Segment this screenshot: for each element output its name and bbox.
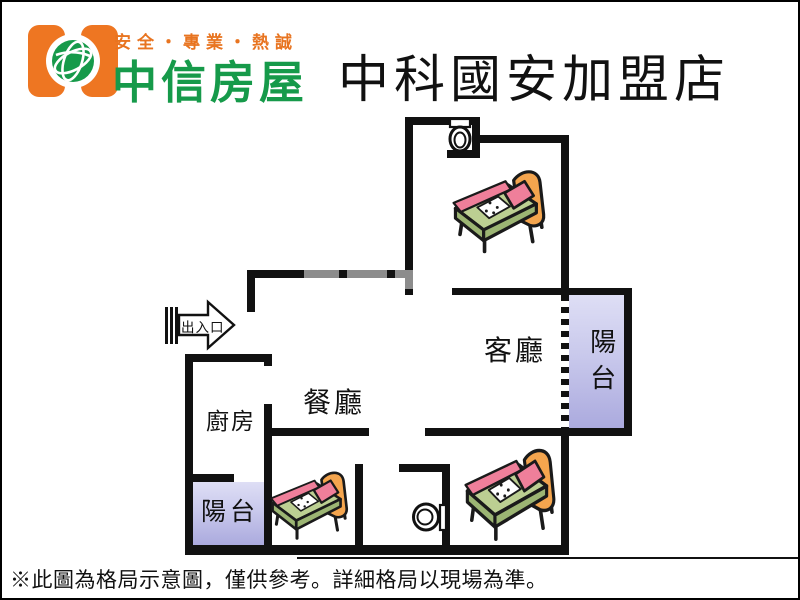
store-title: 中科國安加盟店 [338,38,730,112]
wall-kitchen-balcony-divider [185,474,234,482]
room-label-living: 客廳 [484,337,546,368]
wall-entry-left [247,270,255,312]
real-estate-floorplan-flyer: 安全・專業・熱誠 中信房屋 中科國安加盟店 [0,0,800,600]
footer-divider [297,557,800,559]
bed-icon [462,444,560,544]
wall-balcony-right-outer [624,288,632,436]
room-label-balcony-right: 陽台 [586,328,615,400]
window-wall-tick [405,289,413,295]
chinatrust-logo-icon [26,19,120,103]
window-wall-tick [387,270,395,278]
wall-entry-top [247,270,304,278]
wall-outer-left [185,354,193,555]
wall-kitchen-right-stub [264,354,272,366]
wall-left-upper [405,117,413,270]
brand-name: 中信房屋 [112,46,308,111]
room-label-balcony-left: 陽台 [201,499,259,527]
wall-right-upper [561,135,569,288]
wall-kitchen-top [185,354,272,362]
wall-dining-bottom-left [264,428,369,436]
bed-icon [268,468,352,542]
entrance-label: 出入口 [181,316,225,336]
room-label-dining: 餐廳 [303,389,365,420]
window-wall-tick [339,270,347,278]
toilet-icon [411,501,448,534]
bed-icon [450,166,550,256]
balcony-sliding-door [561,295,569,428]
disclaimer-text: ※此圖為格局示意圖，僅供參考。詳細格局以現場為準。 [10,564,548,594]
wall-dining-bottom-right [425,428,632,436]
window-wall-vertical [405,270,413,289]
wall-living-top [452,288,632,295]
toilet-icon [447,118,473,153]
wall-bedroom2-right [355,464,363,545]
wall-outer-bottom [185,545,569,555]
wall-bedroom1-top [479,135,569,143]
wall-outer-right-lower [561,428,569,555]
room-label-kitchen: 廚房 [206,409,256,434]
